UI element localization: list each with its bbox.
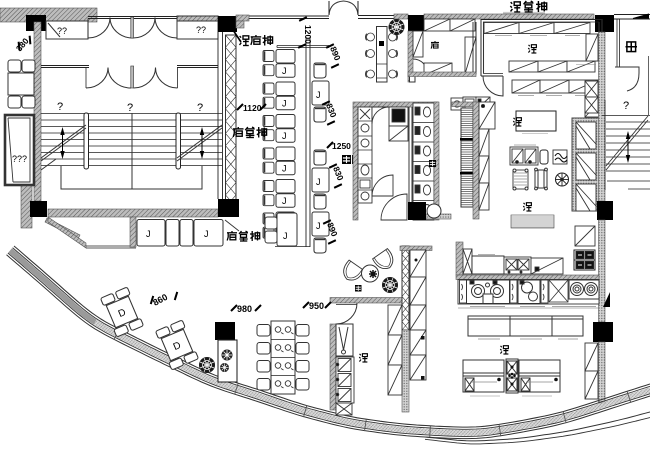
svg-text:?: ? [57, 101, 63, 113]
svg-text:J: J [316, 90, 321, 100]
svg-text:830: 830 [331, 165, 346, 182]
svg-text:J: J [282, 99, 287, 109]
svg-text:J: J [282, 131, 287, 141]
svg-text:J: J [204, 229, 209, 239]
svg-text:?: ? [623, 100, 629, 112]
svg-text:J: J [146, 229, 151, 239]
svg-text:1120: 1120 [243, 103, 262, 113]
svg-text:??: ?? [57, 26, 67, 36]
svg-text:980: 980 [237, 304, 252, 314]
svg-text:???: ??? [12, 154, 27, 164]
svg-text:??: ?? [196, 25, 206, 35]
svg-text:1200: 1200 [303, 25, 313, 44]
svg-text:J: J [316, 221, 321, 231]
svg-text:J: J [283, 231, 288, 241]
svg-text:J: J [282, 66, 287, 76]
svg-text:860: 860 [151, 292, 169, 308]
svg-text:?: ? [127, 102, 133, 114]
svg-text:950: 950 [309, 301, 324, 311]
svg-text:1250: 1250 [332, 141, 351, 151]
svg-text:J: J [316, 177, 321, 187]
svg-text:?: ? [197, 102, 203, 114]
svg-text:890: 890 [328, 45, 343, 62]
svg-text:J: J [282, 164, 287, 174]
svg-text:J: J [282, 196, 287, 206]
svg-text:380: 380 [14, 36, 31, 54]
